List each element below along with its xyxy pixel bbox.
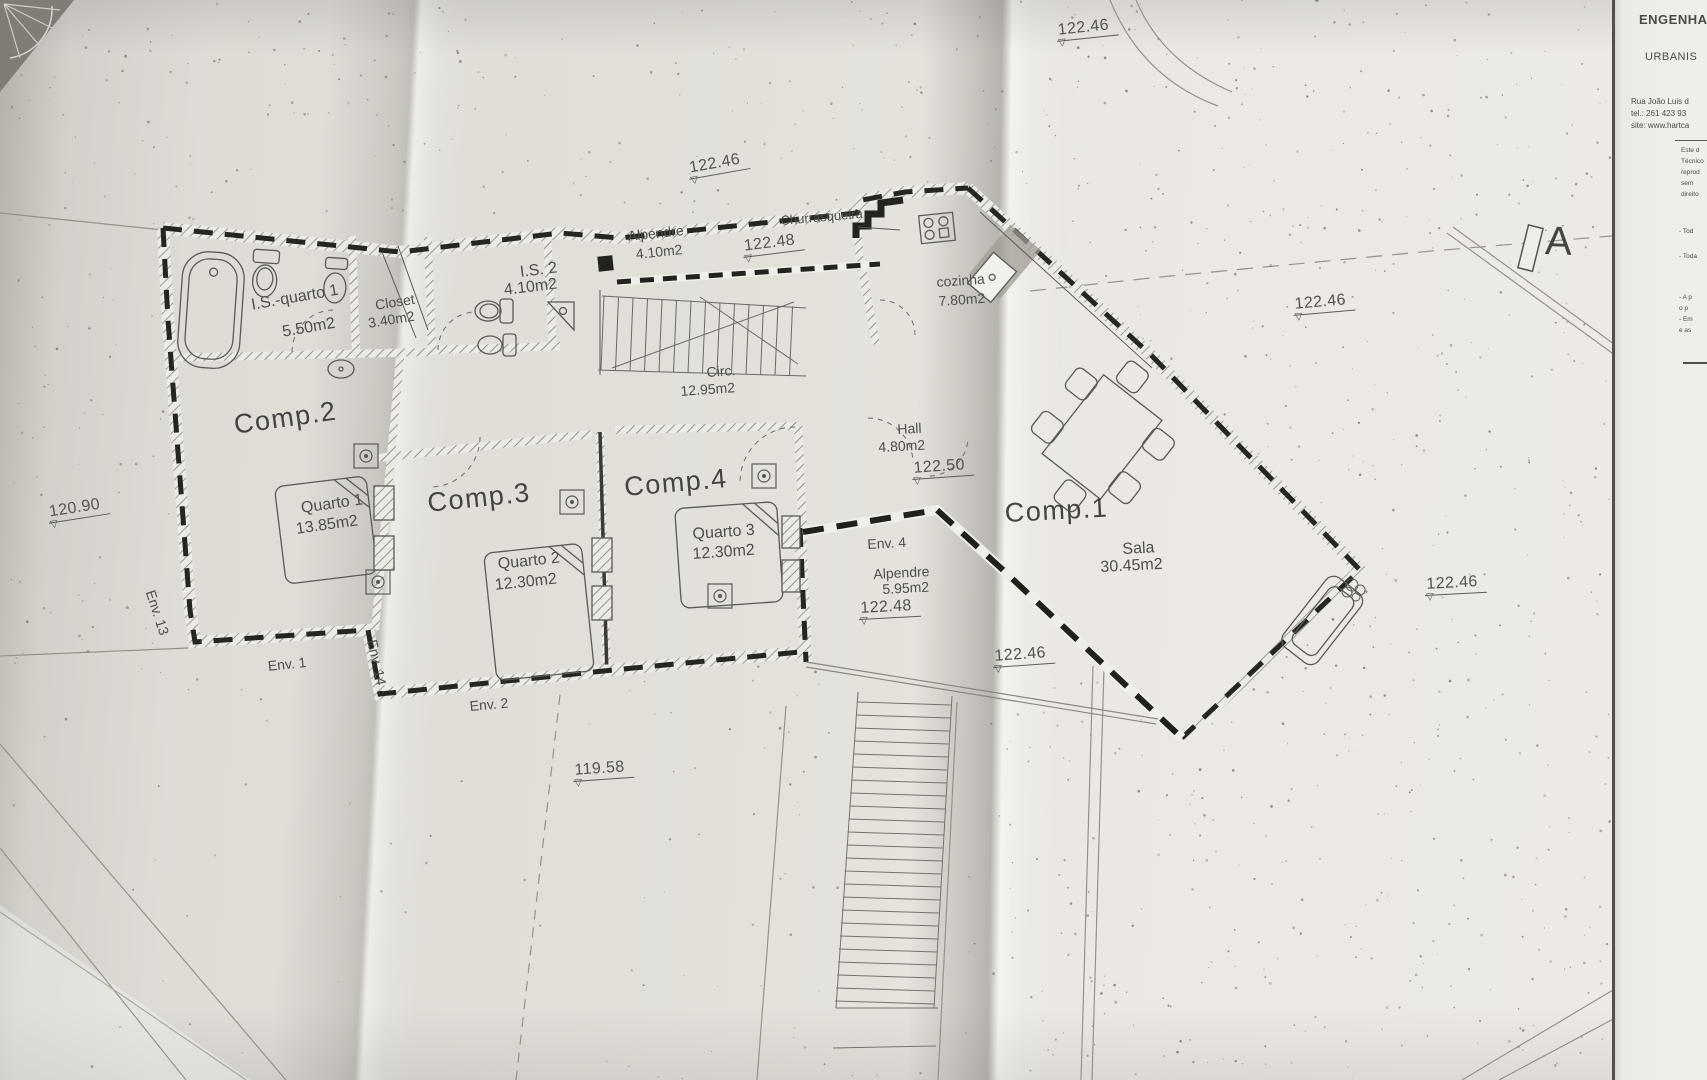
exterior-steps [833,692,952,1048]
panel-divider [1675,140,1707,141]
level-triangle-icon: ▽ [860,617,868,627]
level-triangle-icon: ▽ [994,664,1002,675]
toilet2-icon [475,299,513,323]
note-line: direito [1681,191,1707,198]
nightstand [592,538,612,572]
room-area-cozinha: 7.80m2 [938,290,986,309]
note-line: Técnico [1681,158,1707,165]
spec-notes: - Tod - Toda - A p o p - Em e as [1615,228,1707,334]
room-label-hall: Hall [897,420,922,437]
level-triangle-icon: ▽ [690,175,699,186]
room-area-sala: 30.45m2 [1100,556,1163,578]
room-area-alpendre-env4: 5.95m2 [882,579,929,598]
nightstand [782,516,800,548]
room-label-comp1: Comp.1 [1004,493,1109,529]
stove-icon [919,212,956,243]
panel-divider-thick [1683,362,1707,364]
level-triangle-icon: ▽ [913,476,921,487]
sofa-icon [1278,572,1367,668]
level-triangle-icon: ▽ [1426,593,1434,603]
elevation-marker-bottom: 119.58 ▽ [572,758,634,782]
company-name: ENGENHA [1639,12,1707,27]
company-address: Rua João Luis d tel.: 261 423 93 site: w… [1615,97,1707,130]
note-line: Este d [1681,147,1707,154]
title-block-panel: ENGENHA URBANIS Rua João Luis d tel.: 26… [1612,0,1707,1080]
spec-line: - A p [1679,294,1707,301]
room-label-circ: Circ. [706,362,736,380]
elevation-marker-far-right: 122.46 ▽ [1424,573,1487,596]
address-line: site: www.hartca [1631,121,1707,130]
spec-line: - Tod [1679,228,1707,235]
spec-line: e as [1679,327,1707,334]
floor-plan-drawing [0,0,1707,1080]
room-area-hall: 4.80m2 [878,437,925,456]
level-triangle-icon: ▽ [1058,38,1067,49]
address-line: Rua João Luis d [1631,97,1707,106]
nightstand [374,486,394,520]
level-triangle-icon: ▽ [744,254,753,265]
photographed-floor-plan: Comp.2 Quarto 1 13.85m2 Comp.3 Quarto 2 … [0,0,1707,1080]
nightstand [782,560,800,592]
section-label-a: A [1544,218,1572,265]
spec-line: - Em [1679,316,1707,323]
interior-staircase [598,296,806,376]
spec-line: - Toda [1679,253,1707,260]
note-line: sem [1681,180,1707,187]
toilet-icon [251,249,280,298]
washbasin-icon [328,360,354,378]
section-cut-symbol [1518,225,1543,271]
address-line: tel.: 261 423 93 [1631,109,1707,118]
level-triangle-icon: ▽ [574,778,582,789]
terrain-lines [0,0,1707,1080]
level-triangle-icon: ▽ [50,519,59,530]
porch-column [597,255,613,271]
note-line: reprod [1681,169,1707,176]
level-triangle-icon: ▽ [1294,312,1303,323]
company-subtitle: URBANIS [1645,51,1707,63]
nightstand [374,536,394,570]
label-env2: Env. 2 [469,695,509,714]
bathtub-icon [176,250,246,370]
label-env4: Env. 4 [867,534,906,552]
spec-line: o p [1679,305,1707,312]
room-label-cozinha: cozinha [936,271,985,290]
nightstand [592,586,612,620]
elevation-marker-env4: 122.48 ▽ [858,597,921,620]
copyright-notes: Este d Técnico reprod sem direito [1615,147,1707,198]
corner-object [0,0,74,92]
